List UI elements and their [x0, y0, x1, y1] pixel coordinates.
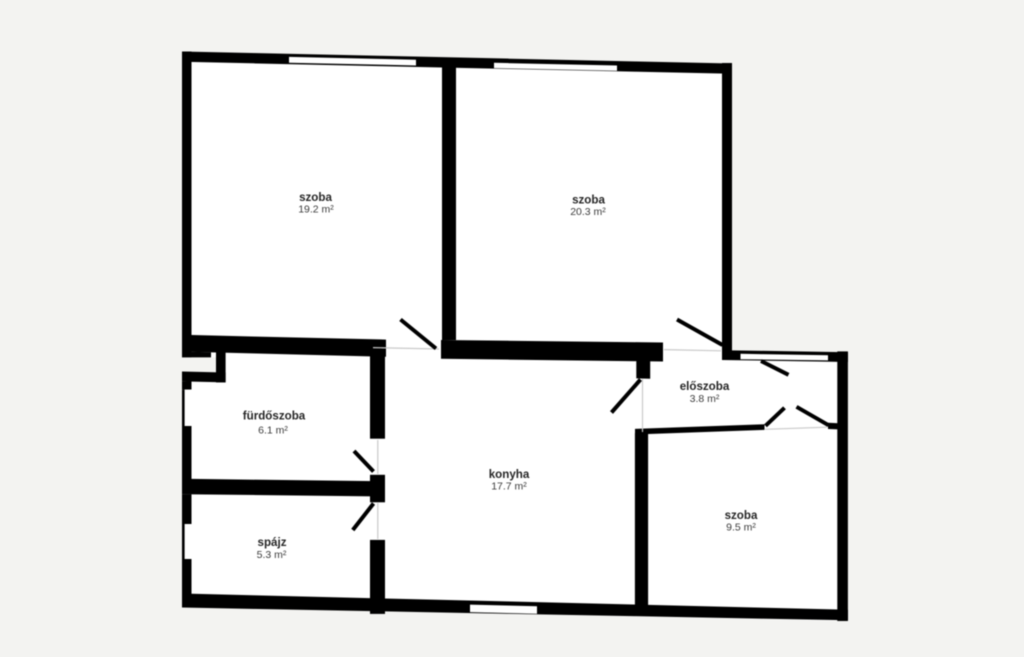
svg-text:szoba: szoba — [572, 194, 605, 207]
svg-text:konyha: konyha — [489, 468, 530, 481]
svg-text:19.2 m²: 19.2 m² — [298, 204, 334, 216]
svg-text:17.7 m²: 17.7 m² — [491, 481, 527, 493]
svg-text:szoba: szoba — [725, 509, 758, 522]
svg-text:szoba: szoba — [299, 191, 332, 204]
svg-text:fürdőszoba: fürdőszoba — [243, 410, 306, 423]
svg-text:előszoba: előszoba — [680, 380, 730, 393]
svg-text:9.5 m²: 9.5 m² — [726, 522, 756, 534]
svg-text:5.3 m²: 5.3 m² — [257, 549, 287, 561]
svg-text:spájz: spájz — [258, 536, 287, 549]
svg-text:6.1 m²: 6.1 m² — [258, 425, 288, 437]
svg-text:3.8 m²: 3.8 m² — [690, 393, 720, 405]
svg-text:20.3 m²: 20.3 m² — [570, 206, 606, 218]
